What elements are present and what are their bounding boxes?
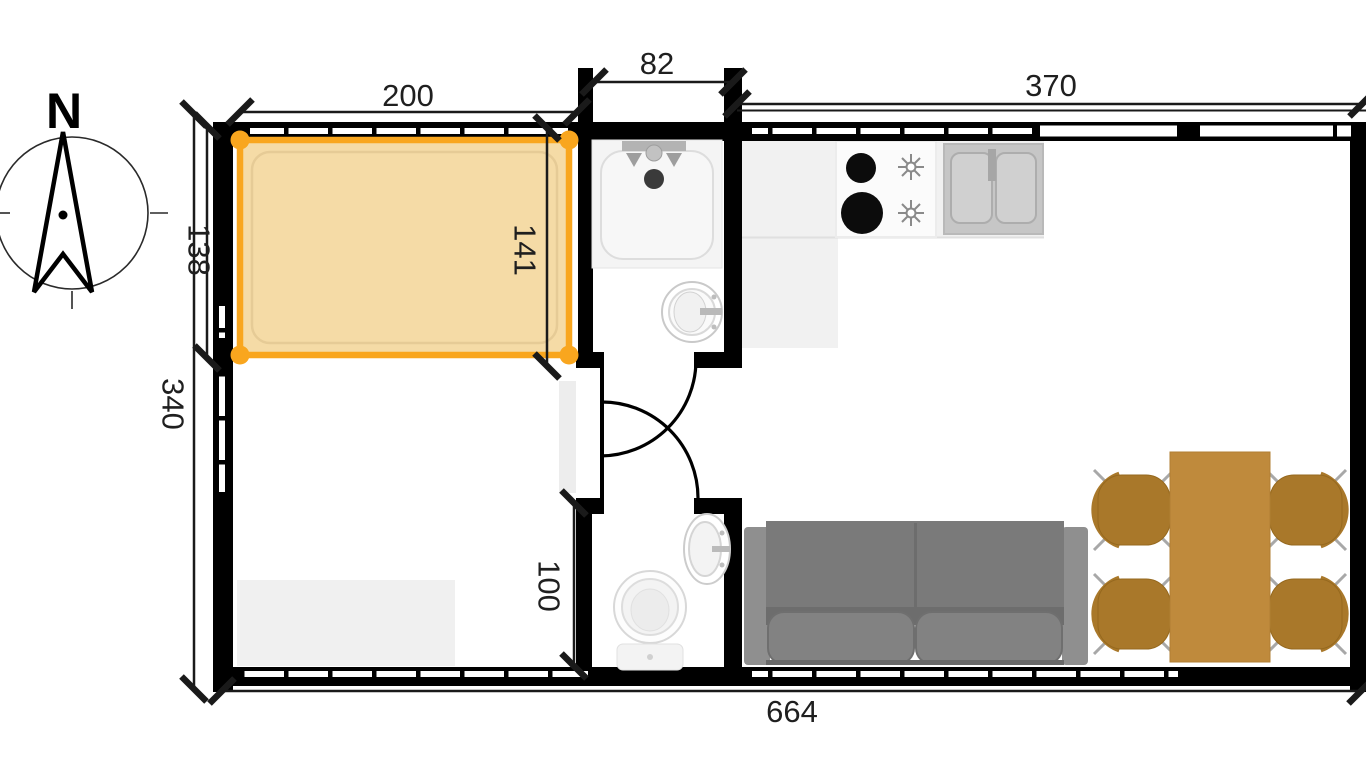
chair[interactable] <box>1270 579 1342 649</box>
window[interactable] <box>752 671 1178 677</box>
dim-label-bathroom-width[interactable]: 82 <box>640 46 674 81</box>
dim-label-bed-width[interactable]: 200 <box>382 78 434 113</box>
dining-set[interactable] <box>1094 452 1346 662</box>
compass-north-label: N <box>46 83 82 139</box>
washbasin-round[interactable] <box>662 282 722 342</box>
faucet-icon <box>712 546 730 552</box>
compass[interactable]: N <box>0 83 168 309</box>
floor-patches <box>237 381 576 666</box>
shower[interactable] <box>592 140 722 268</box>
sofa-armrest <box>1062 527 1088 665</box>
window[interactable] <box>1040 126 1177 137</box>
selection-handle[interactable] <box>560 346 579 365</box>
window[interactable] <box>1200 126 1333 137</box>
wall-bathroom-bottom[interactable] <box>694 352 742 368</box>
sofa-seat-cushion <box>768 612 914 664</box>
sofa-seat-cushion <box>916 612 1062 664</box>
faucet-icon <box>988 149 996 181</box>
wall-hall-partition[interactable] <box>600 368 604 498</box>
selection-handle[interactable] <box>231 346 250 365</box>
dining-table[interactable] <box>1170 452 1270 662</box>
toilet[interactable] <box>614 571 686 670</box>
hall-floor-strip <box>559 381 576 493</box>
wall-right[interactable] <box>1350 122 1366 692</box>
chair[interactable] <box>1098 579 1170 649</box>
dim-label-left-total[interactable]: 340 <box>156 378 191 430</box>
dim-label-kitchen-width[interactable]: 370 <box>1025 68 1077 103</box>
dim-label-wc-height[interactable]: 100 <box>532 560 567 612</box>
window[interactable] <box>1337 126 1351 137</box>
burner-small <box>846 153 876 183</box>
wall-wc-left[interactable] <box>576 498 592 682</box>
sofa[interactable] <box>744 521 1088 665</box>
chair[interactable] <box>1270 475 1342 545</box>
window[interactable] <box>219 306 225 338</box>
rug <box>237 580 455 666</box>
window[interactable] <box>240 671 588 677</box>
dim-label-bed-depth[interactable]: 138 <box>182 224 217 276</box>
selection-handle[interactable] <box>560 131 579 150</box>
window[interactable] <box>219 376 225 492</box>
selection-handle[interactable] <box>231 131 250 150</box>
dim-label-bed-inner[interactable]: 141 <box>508 224 543 276</box>
faucet-icon <box>700 308 722 315</box>
drain-icon <box>644 169 664 189</box>
window[interactable] <box>752 128 1034 134</box>
wall-wc-right[interactable] <box>724 498 742 682</box>
dim-label-bottom-total[interactable]: 664 <box>766 694 818 729</box>
wall-bathroom-left[interactable] <box>578 68 593 368</box>
floor-plan-canvas[interactable]: 200 82 370 138 340 141 100 664 N <box>0 0 1366 768</box>
wall-bathroom-right[interactable] <box>724 68 742 368</box>
window[interactable] <box>250 128 568 134</box>
burner-large <box>841 192 883 234</box>
kitchen-sink[interactable] <box>944 144 1043 234</box>
door-arc-wc[interactable] <box>602 402 698 498</box>
washbasin-oval[interactable] <box>684 514 730 584</box>
chair[interactable] <box>1098 475 1170 545</box>
wall-bathroom-bottom[interactable] <box>576 352 604 368</box>
doors[interactable] <box>600 360 698 498</box>
cooktop[interactable] <box>836 141 936 237</box>
